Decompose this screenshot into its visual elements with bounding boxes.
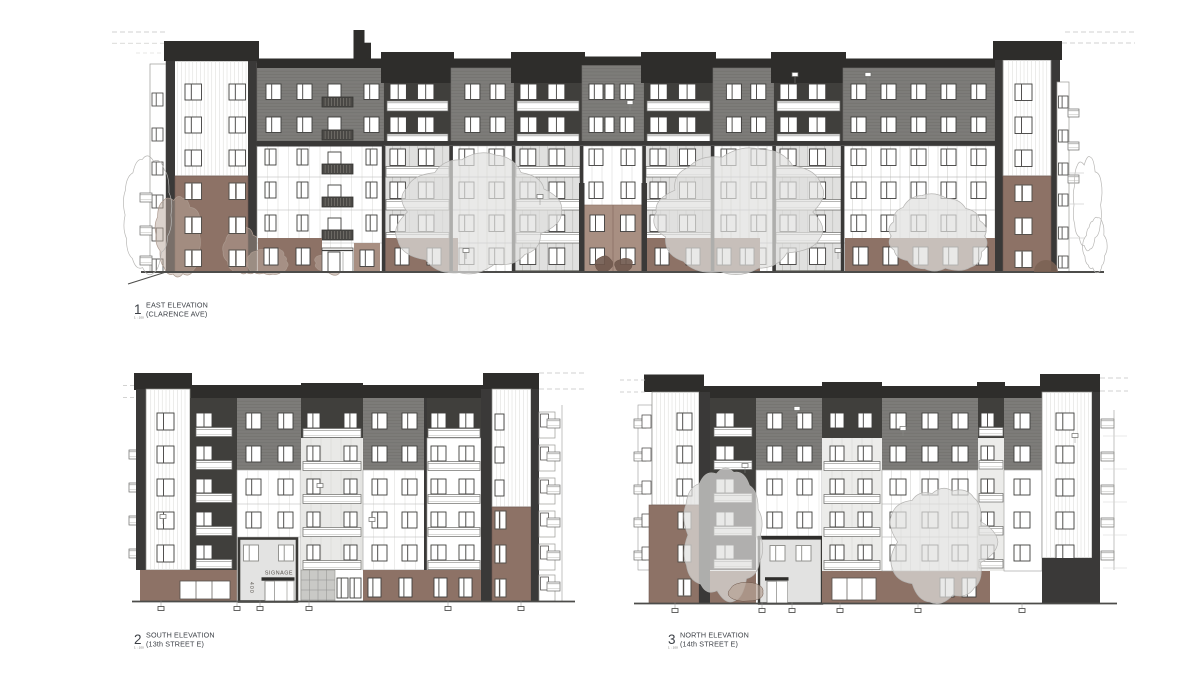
svg-text:(CLARENCE AVE): (CLARENCE AVE) [146, 310, 207, 319]
svg-text:(14th STREET E): (14th STREET E) [680, 640, 738, 649]
svg-text:NORTH ELEVATION: NORTH ELEVATION [680, 631, 749, 640]
svg-text:SOUTH ELEVATION: SOUTH ELEVATION [146, 631, 215, 640]
svg-text:(13th STREET E): (13th STREET E) [146, 640, 204, 649]
svg-text:400: 400 [248, 582, 254, 594]
svg-text:1 : 100: 1 : 100 [668, 646, 678, 650]
svg-text:SIGNAGE: SIGNAGE [265, 571, 293, 577]
svg-text:1 : 100: 1 : 100 [134, 646, 144, 650]
svg-text:EAST ELEVATION: EAST ELEVATION [146, 301, 208, 310]
svg-text:1 : 100: 1 : 100 [134, 316, 144, 320]
